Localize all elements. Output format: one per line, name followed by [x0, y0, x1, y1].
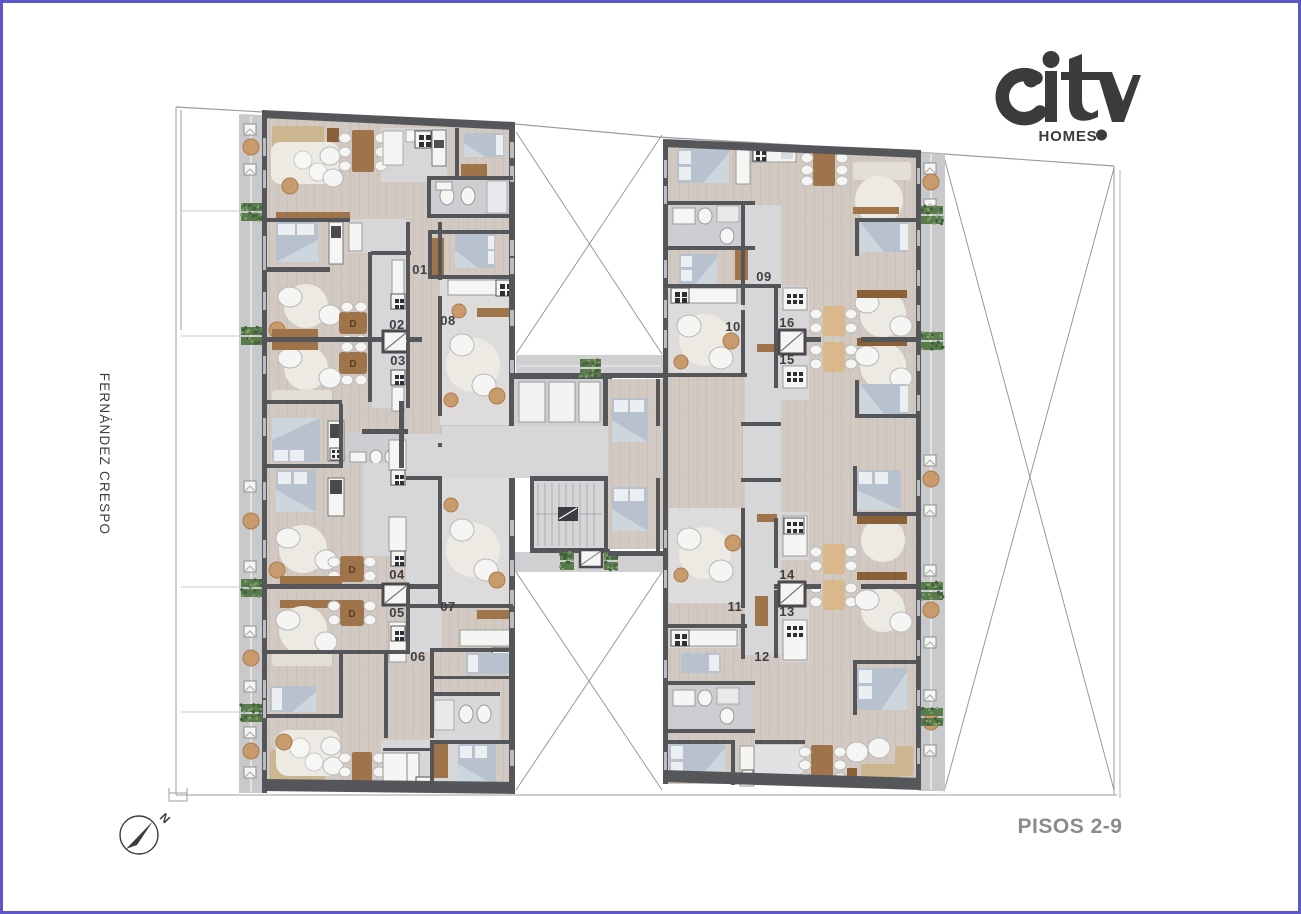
svg-text:D: D	[348, 609, 355, 620]
svg-text:N: N	[157, 810, 173, 826]
svg-text:05: 05	[389, 605, 404, 620]
svg-text:D: D	[349, 359, 356, 370]
svg-text:09: 09	[756, 269, 771, 284]
svg-text:07: 07	[440, 599, 455, 614]
svg-text:04: 04	[389, 567, 405, 582]
svg-text:08: 08	[440, 313, 455, 328]
svg-text:01: 01	[412, 262, 427, 277]
svg-text:FERNÁNDEZ CRESPO: FERNÁNDEZ CRESPO	[97, 373, 112, 535]
svg-text:PISOS 2-9: PISOS 2-9	[1018, 815, 1123, 838]
svg-text:13: 13	[779, 604, 794, 619]
svg-text:D: D	[348, 565, 355, 576]
svg-text:02: 02	[389, 317, 404, 332]
svg-text:11: 11	[728, 599, 743, 614]
svg-text:14: 14	[779, 567, 795, 582]
svg-text:16: 16	[779, 315, 794, 330]
svg-text:15: 15	[779, 352, 794, 367]
svg-text:03: 03	[390, 353, 405, 368]
svg-text:10: 10	[725, 319, 740, 334]
svg-text:12: 12	[754, 649, 769, 664]
svg-text:HOMES: HOMES	[1038, 128, 1097, 145]
svg-text:06: 06	[410, 649, 425, 664]
svg-text:D: D	[349, 319, 356, 330]
